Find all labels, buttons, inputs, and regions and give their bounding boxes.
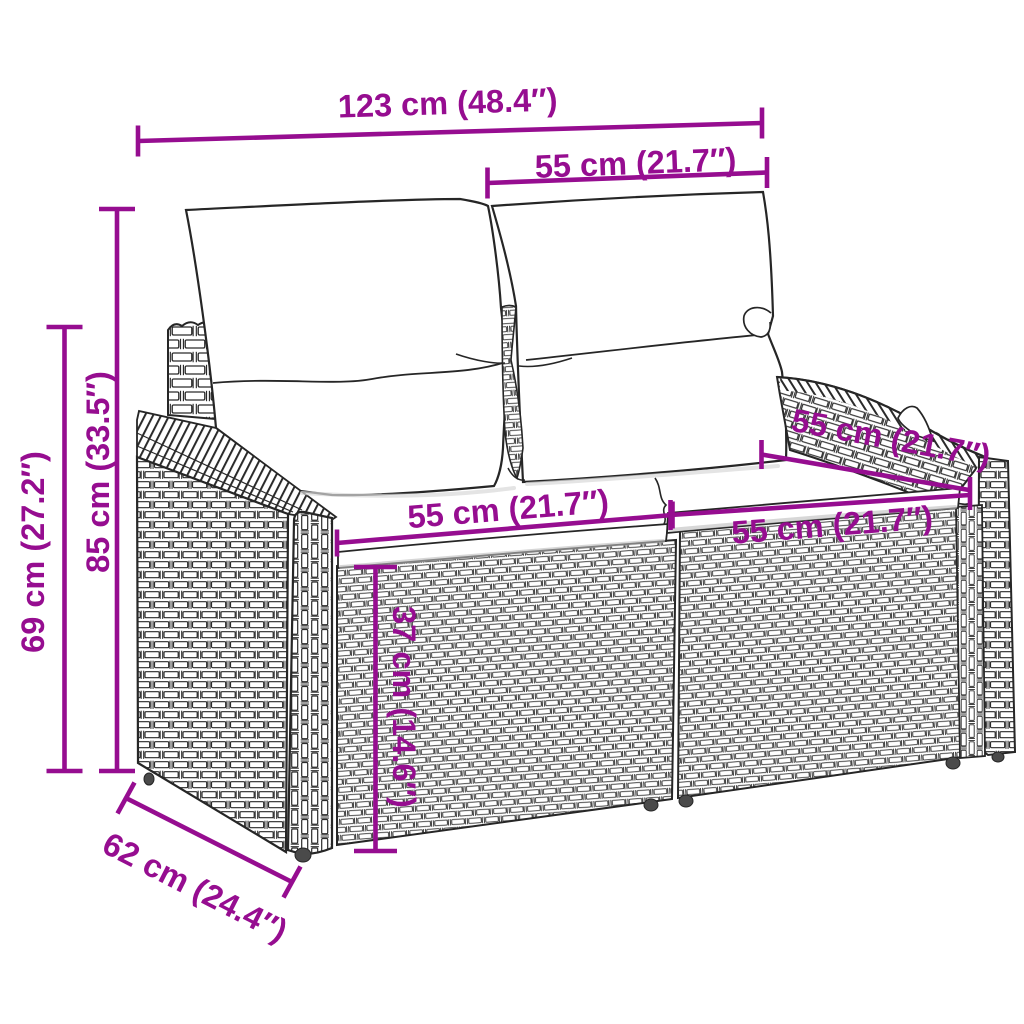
svg-text:69 cm (27.2″): 69 cm (27.2″) [15, 451, 51, 653]
svg-text:85 cm (33.5″): 85 cm (33.5″) [80, 371, 116, 573]
svg-text:37 cm (14.6″): 37 cm (14.6″) [386, 606, 422, 808]
svg-text:123 cm (48.4″): 123 cm (48.4″) [337, 81, 558, 124]
